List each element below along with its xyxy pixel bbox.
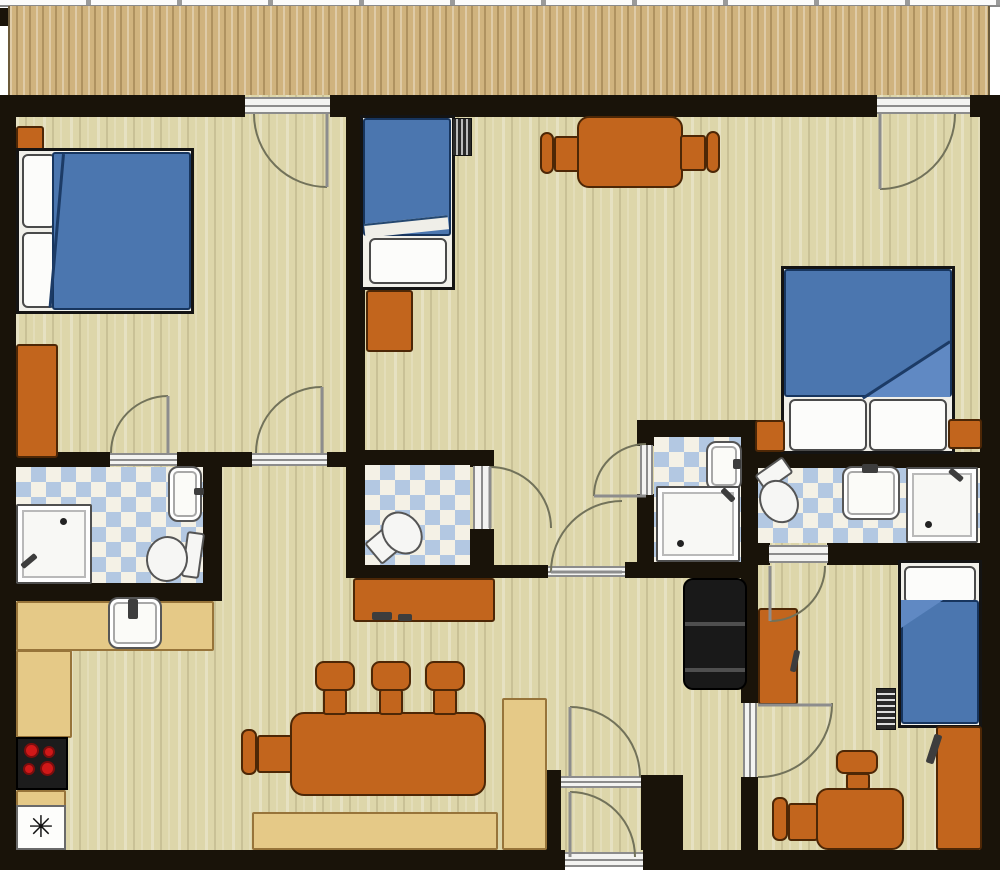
wall-hallway-west [545,770,561,850]
bathroom-right-sink [842,466,900,520]
bedroom3-stool-seat [846,773,870,790]
living-table-chair-right-back [706,131,720,173]
dining-chair-back [241,729,257,775]
bedroom3-chair-back [772,797,788,841]
wall-bathroom-middle-west-2 [637,494,654,562]
kitchen-burner-3 [23,763,35,775]
bathroom-left-shower-drain [60,518,67,525]
dining-stool-1-seat [323,689,347,715]
wall-bedroom1-south-3 [327,452,349,467]
dining-table [290,712,486,796]
threshold-hall-bedroom3-door [743,703,757,777]
bathroom-right-shower-drain [925,521,932,528]
bedroom2-nightstand-right [948,419,982,449]
hall-closet [502,698,547,850]
bedroom2-nightstand-left [755,420,785,452]
bedroom1-wardrobe [16,344,58,458]
bedroom3-stool-back [836,750,878,774]
kitchen-faucet [128,599,138,619]
floor-plan: ✳ [0,0,1000,870]
wall-outer-right [980,95,1000,868]
threshold-bedroom1-kitchen-door [252,453,327,466]
bedroom3-pillow [904,566,976,604]
wall-bathroom-middle-west-1 [637,420,654,446]
dining-chair-seat [257,735,293,773]
living-table-chair-left-back [540,132,554,174]
bathroom-left-shower [16,504,92,584]
wall-bathroom-left-east [203,452,222,601]
bedroom3-wardrobe [936,726,982,850]
threshold-corridor-hall-door [548,566,625,577]
living-table-chair-right-seat [680,135,706,171]
kitchen-burner-4 [40,761,55,776]
kitchen-sideboard-handle-2 [398,614,412,621]
bathroom-middle-shower-drain [677,540,684,547]
living-single-bed-pillow [369,238,447,284]
bathroom-middle-faucet [733,459,741,469]
bedroom2-pillow-2 [869,399,947,451]
dining-stool-1-back [315,661,355,691]
bedroom3-table [816,788,904,850]
threshold-bathroom-left-door [110,453,177,466]
threshold-wc-door [473,466,491,529]
threshold-balcony-door-left [245,97,330,114]
hall-black-cabinet [683,578,747,690]
wall-outer-top-2 [330,95,877,117]
living-radiator [452,118,472,156]
threshold-entrance-door [565,852,643,867]
kitchen-sideboard-handle-1 [372,612,392,620]
wall-bathroom-middle-north [637,420,757,437]
dining-stool-3-seat [433,689,457,715]
living-table [577,116,683,188]
balcony-end-left [0,8,8,26]
dining-stool-3-back [425,661,465,691]
bedroom3-radiator [876,688,896,730]
kitchen-freezer: ✳ [16,805,66,850]
kitchen-burner-1 [24,743,39,758]
threshold-balcony-door-right [877,97,970,114]
living-nightstand [366,290,413,352]
bedroom1-blanket [52,152,191,310]
threshold-bathroom-middle-door [640,445,653,495]
wall-wc-east-1 [470,450,494,467]
bedroom3-chair-seat [788,803,818,841]
wall-outer-bottom-1 [0,850,565,870]
wall-south-band-a [346,565,548,578]
wall-outer-bottom-2 [643,850,1000,870]
wall-vestibule-east [641,775,683,850]
dining-stool-2-seat [379,689,403,715]
balcony-floor [8,6,990,95]
bathroom-right-faucet [862,464,878,473]
threshold-vestibule-door [561,776,641,788]
kitchen-counter-left [16,650,72,738]
bathroom-left-faucet [194,488,204,495]
dining-bench [252,812,498,850]
wall-outer-top-1 [0,95,245,117]
kitchen-burner-2 [43,746,55,758]
wall-outer-left [0,95,16,868]
wall-south-band-b [625,562,757,578]
dining-stool-2-back [371,661,411,691]
threshold-bathroom-right-door [769,545,828,563]
bedroom2-pillow-1 [789,399,867,451]
bedroom1-pillow-1 [22,154,56,228]
bathroom-right-shower [906,467,978,543]
wall-bedroom3-west-2 [741,777,758,850]
